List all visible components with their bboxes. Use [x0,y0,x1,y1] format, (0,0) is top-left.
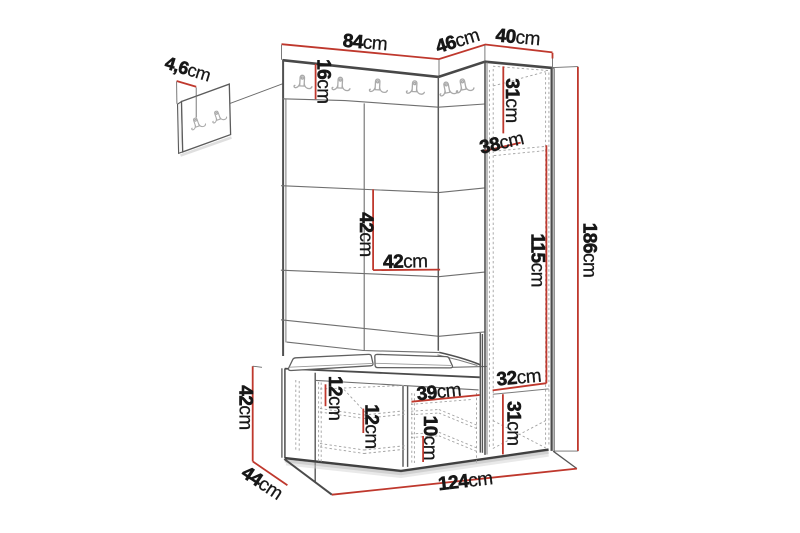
svg-text:42cm: 42cm [235,385,256,429]
svg-text:16cm: 16cm [312,59,333,103]
svg-text:32cm: 32cm [496,366,542,391]
svg-text:40cm: 40cm [495,25,541,50]
svg-text:115cm: 115cm [526,233,547,286]
svg-text:12cm: 12cm [360,404,381,448]
svg-text:84cm: 84cm [342,31,388,56]
svg-text:10cm: 10cm [419,416,440,460]
svg-text:42cm: 42cm [355,212,376,256]
svg-text:42cm: 42cm [383,251,428,273]
svg-text:186cm: 186cm [579,223,600,278]
svg-text:31cm: 31cm [501,78,522,122]
svg-text:12cm: 12cm [324,376,345,420]
svg-text:31cm: 31cm [503,401,524,445]
